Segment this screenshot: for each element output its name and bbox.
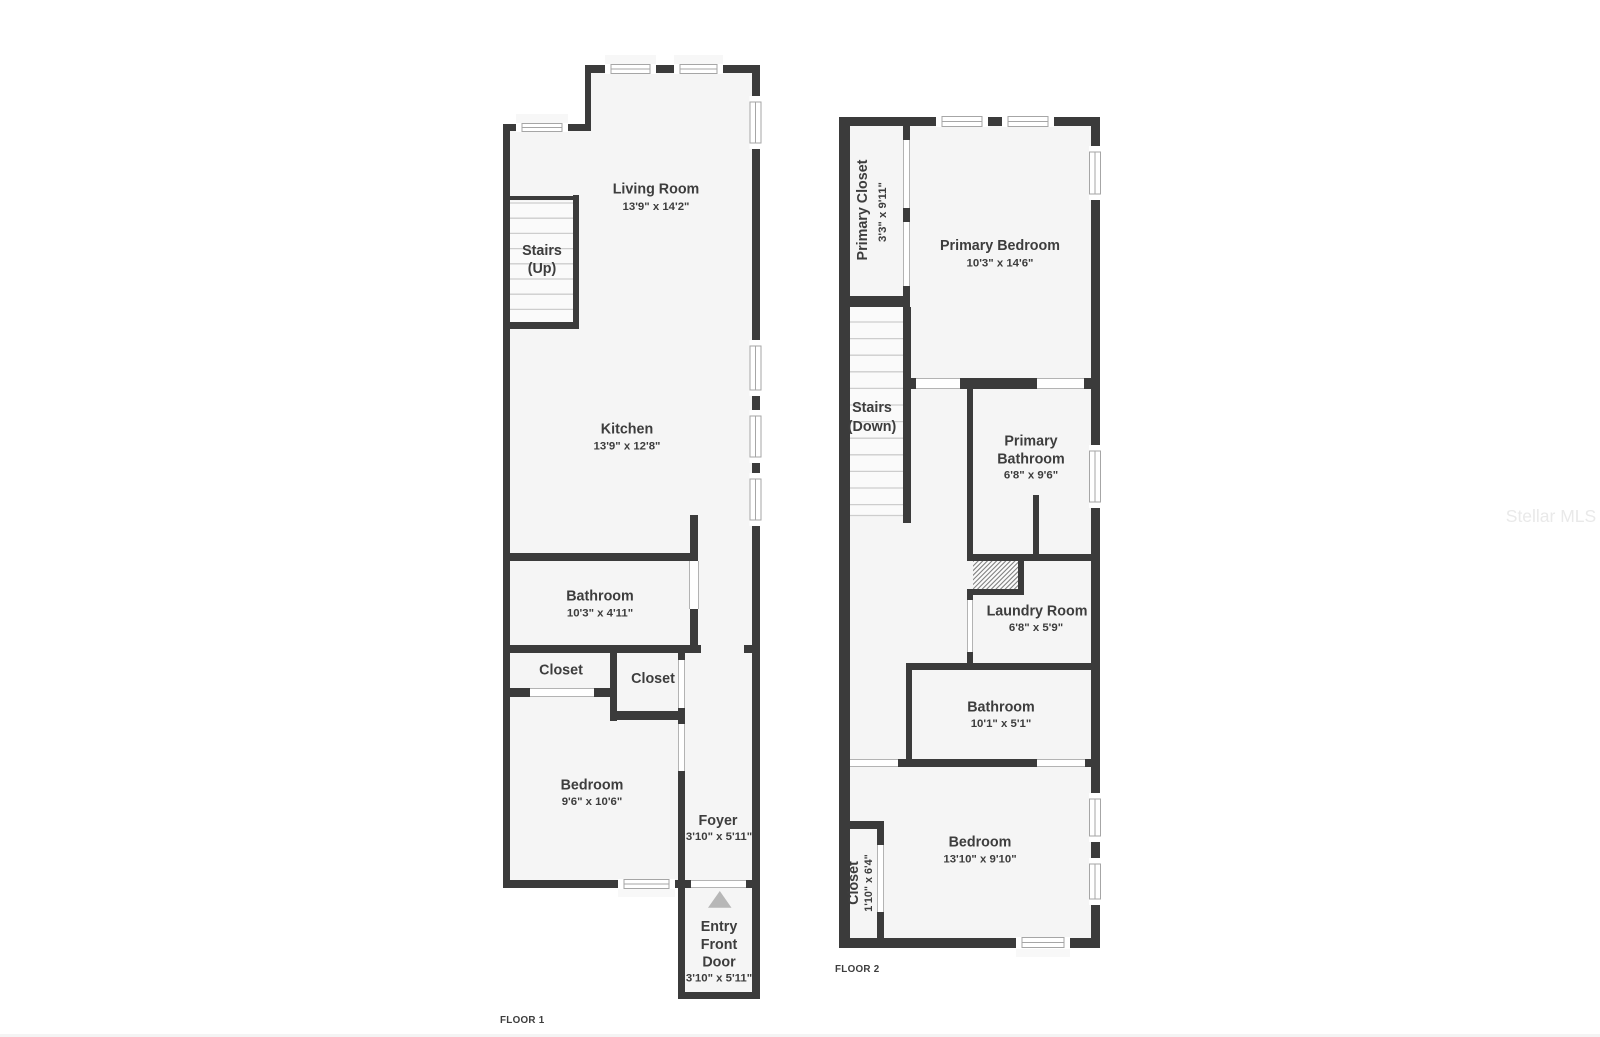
svg-text:Closet: Closet	[846, 861, 862, 905]
svg-text:6'8" x 9'6": 6'8" x 9'6"	[1004, 470, 1058, 482]
svg-text:9'6" x 10'6": 9'6" x 10'6"	[562, 796, 623, 808]
svg-text:Stairs: Stairs	[522, 243, 562, 259]
svg-text:Primary: Primary	[1004, 434, 1057, 450]
svg-text:(Down): (Down)	[848, 419, 897, 435]
svg-text:Bedroom: Bedroom	[949, 835, 1012, 851]
svg-text:Bedroom: Bedroom	[561, 778, 624, 794]
svg-text:Laundry Room: Laundry Room	[987, 604, 1088, 620]
svg-text:FLOOR 2: FLOOR 2	[835, 964, 880, 975]
svg-text:10'1" x 5'1": 10'1" x 5'1"	[971, 718, 1032, 730]
svg-text:(Up): (Up)	[528, 261, 557, 277]
svg-text:6'8" x 5'9": 6'8" x 5'9"	[1009, 622, 1063, 634]
svg-text:Primary Bedroom: Primary Bedroom	[940, 238, 1060, 254]
svg-text:Bathroom: Bathroom	[967, 700, 1035, 716]
svg-text:Closet: Closet	[631, 671, 675, 687]
svg-text:Door: Door	[702, 955, 736, 971]
svg-text:Stairs: Stairs	[852, 400, 892, 416]
svg-text:3'3" x 9'11": 3'3" x 9'11"	[877, 182, 889, 242]
svg-text:1'10" x 6'4": 1'10" x 6'4"	[863, 854, 875, 911]
svg-text:13'10" x 9'10": 13'10" x 9'10"	[943, 854, 1016, 866]
svg-text:Entry: Entry	[701, 919, 738, 935]
svg-text:10'3" x 4'11": 10'3" x 4'11"	[567, 608, 633, 620]
svg-text:3'10" x 5'11": 3'10" x 5'11"	[686, 973, 752, 985]
svg-text:FLOOR 1: FLOOR 1	[500, 1015, 545, 1026]
svg-text:3'10" x 5'11": 3'10" x 5'11"	[686, 831, 752, 843]
svg-text:Front: Front	[701, 937, 738, 953]
svg-text:Bathroom: Bathroom	[997, 452, 1065, 468]
svg-text:10'3" x 14'6": 10'3" x 14'6"	[967, 258, 1034, 270]
svg-text:Living Room: Living Room	[613, 182, 700, 198]
svg-text:Foyer: Foyer	[699, 813, 738, 829]
svg-text:13'9" x 12'8": 13'9" x 12'8"	[594, 441, 661, 453]
svg-text:Closet: Closet	[539, 663, 583, 679]
svg-text:Kitchen: Kitchen	[601, 422, 653, 438]
svg-text:Primary Closet: Primary Closet	[855, 159, 871, 260]
svg-text:Stellar MLS: Stellar MLS	[1506, 506, 1596, 526]
svg-text:13'9" x 14'2": 13'9" x 14'2"	[623, 201, 690, 213]
svg-text:Bathroom: Bathroom	[566, 589, 634, 605]
